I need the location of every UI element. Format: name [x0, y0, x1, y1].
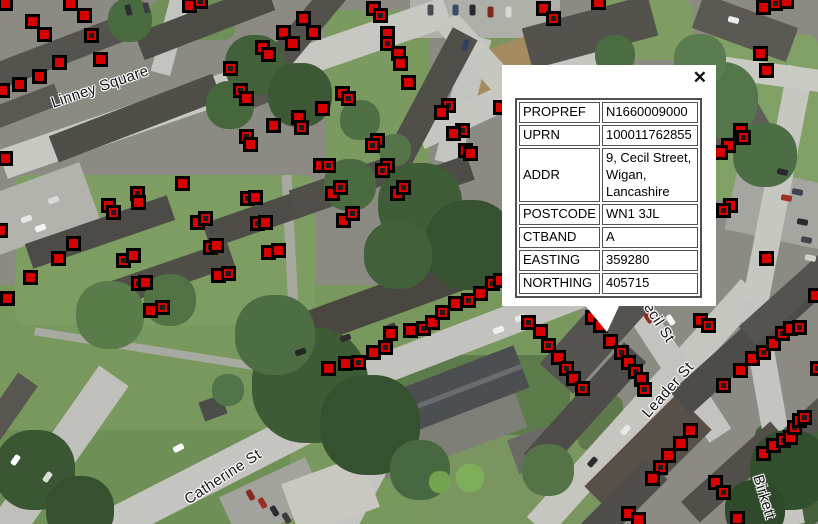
property-marker[interactable] [345, 206, 360, 221]
attribute-row: UPRN100011762855 [519, 125, 698, 146]
property-marker[interactable] [401, 75, 416, 90]
tree [522, 444, 574, 496]
property-marker[interactable] [77, 8, 92, 23]
property-marker[interactable] [701, 318, 716, 333]
tree [364, 221, 432, 289]
attribute-row: NORTHING405715 [519, 273, 698, 294]
property-marker[interactable] [321, 158, 336, 173]
property-marker[interactable] [759, 251, 774, 266]
property-marker[interactable] [434, 105, 449, 120]
property-marker[interactable] [271, 243, 286, 258]
attribute-value: A [602, 227, 698, 248]
attribute-row: EASTING359280 [519, 250, 698, 271]
attribute-row: PROPREFN1660009000 [519, 102, 698, 123]
property-marker[interactable] [716, 485, 731, 500]
feature-attributes-table: PROPREFN1660009000UPRN100011762855ADDR9,… [515, 98, 702, 298]
attribute-value: 9, Cecil Street, Wigan, Lancashire [602, 148, 698, 203]
close-icon[interactable]: ✕ [693, 69, 707, 86]
attribute-label: NORTHING [519, 273, 600, 294]
attribute-row: POSTCODEWN1 3JL [519, 204, 698, 225]
aerial-map[interactable]: Linney SquareCatherine StCecil StLeader … [0, 0, 818, 524]
property-marker[interactable] [393, 56, 408, 71]
property-marker[interactable] [93, 52, 108, 67]
property-marker[interactable] [321, 361, 336, 376]
car [804, 254, 816, 262]
attribute-value: 359280 [602, 250, 698, 271]
car [453, 5, 459, 16]
property-marker[interactable] [138, 275, 153, 290]
property-marker[interactable] [285, 36, 300, 51]
property-marker[interactable] [261, 47, 276, 62]
property-marker[interactable] [341, 91, 356, 106]
attribute-value: WN1 3JL [602, 204, 698, 225]
car [506, 7, 512, 18]
car [470, 5, 476, 16]
property-marker[interactable] [716, 378, 731, 393]
property-marker[interactable] [808, 288, 818, 303]
property-marker[interactable] [84, 28, 99, 43]
property-marker[interactable] [396, 180, 411, 195]
tree [212, 374, 244, 406]
attribute-row: ADDR9, Cecil Street, Wigan, Lancashire [519, 148, 698, 203]
property-marker[interactable] [63, 0, 78, 11]
attribute-label: ADDR [519, 148, 600, 203]
property-marker[interactable] [0, 223, 8, 238]
property-marker[interactable] [0, 291, 15, 306]
attribute-label: CTBAND [519, 227, 600, 248]
property-marker[interactable] [243, 137, 258, 152]
property-marker[interactable] [446, 126, 461, 141]
property-marker[interactable] [12, 77, 27, 92]
property-marker[interactable] [0, 0, 13, 11]
property-marker[interactable] [106, 205, 121, 220]
property-marker[interactable] [375, 163, 390, 178]
property-marker[interactable] [23, 270, 38, 285]
attribute-value: N1660009000 [602, 102, 698, 123]
property-marker[interactable] [52, 55, 67, 70]
property-marker[interactable] [32, 69, 47, 84]
property-marker[interactable] [378, 340, 393, 355]
property-marker[interactable] [51, 251, 66, 266]
property-marker[interactable] [792, 320, 807, 335]
property-marker[interactable] [0, 151, 13, 166]
property-marker[interactable] [463, 146, 478, 161]
property-marker[interactable] [37, 27, 52, 42]
property-marker[interactable] [546, 11, 561, 26]
attribute-label: EASTING [519, 250, 600, 271]
property-marker[interactable] [155, 300, 170, 315]
attribute-row: CTBANDA [519, 227, 698, 248]
property-marker[interactable] [193, 0, 208, 9]
property-marker[interactable] [645, 471, 660, 486]
attribute-value: 100011762855 [602, 125, 698, 146]
property-marker[interactable] [759, 63, 774, 78]
property-marker[interactable] [131, 195, 146, 210]
property-marker[interactable] [373, 8, 388, 23]
property-marker[interactable] [779, 0, 794, 9]
property-marker[interactable] [736, 130, 751, 145]
property-marker[interactable] [296, 11, 311, 26]
property-marker[interactable] [315, 101, 330, 116]
popup-tail-pointer [584, 304, 620, 332]
property-marker[interactable] [637, 382, 652, 397]
tree [456, 464, 484, 492]
property-marker[interactable] [810, 361, 818, 376]
property-marker[interactable] [221, 266, 236, 281]
property-marker[interactable] [575, 381, 590, 396]
tree [429, 471, 451, 493]
property-marker[interactable] [631, 512, 646, 524]
property-marker[interactable] [66, 236, 81, 251]
attribute-label: POSTCODE [519, 204, 600, 225]
property-marker[interactable] [351, 355, 366, 370]
attribute-label: PROPREF [519, 102, 600, 123]
car [428, 5, 434, 16]
feature-info-popup: ✕ PROPREFN1660009000UPRN100011762855ADDR… [502, 65, 716, 306]
property-marker[interactable] [383, 326, 398, 341]
property-marker[interactable] [294, 120, 309, 135]
attribute-label: UPRN [519, 125, 600, 146]
property-marker[interactable] [306, 25, 321, 40]
property-marker[interactable] [223, 61, 238, 76]
property-marker[interactable] [198, 211, 213, 226]
property-marker[interactable] [591, 0, 606, 10]
property-marker[interactable] [258, 215, 273, 230]
property-marker[interactable] [753, 46, 768, 61]
property-marker[interactable] [730, 511, 745, 524]
property-marker[interactable] [0, 83, 10, 98]
property-marker[interactable] [175, 176, 190, 191]
property-marker[interactable] [266, 118, 281, 133]
tree [76, 281, 144, 349]
property-marker[interactable] [239, 91, 254, 106]
car [488, 7, 494, 18]
property-marker[interactable] [333, 180, 348, 195]
property-marker[interactable] [716, 203, 731, 218]
property-marker[interactable] [248, 190, 263, 205]
tree [235, 295, 315, 375]
property-marker[interactable] [533, 324, 548, 339]
property-marker[interactable] [797, 410, 812, 425]
attribute-value: 405715 [602, 273, 698, 294]
tree [46, 476, 114, 524]
property-marker[interactable] [365, 138, 380, 153]
property-marker[interactable] [209, 238, 224, 253]
property-marker[interactable] [126, 248, 141, 263]
